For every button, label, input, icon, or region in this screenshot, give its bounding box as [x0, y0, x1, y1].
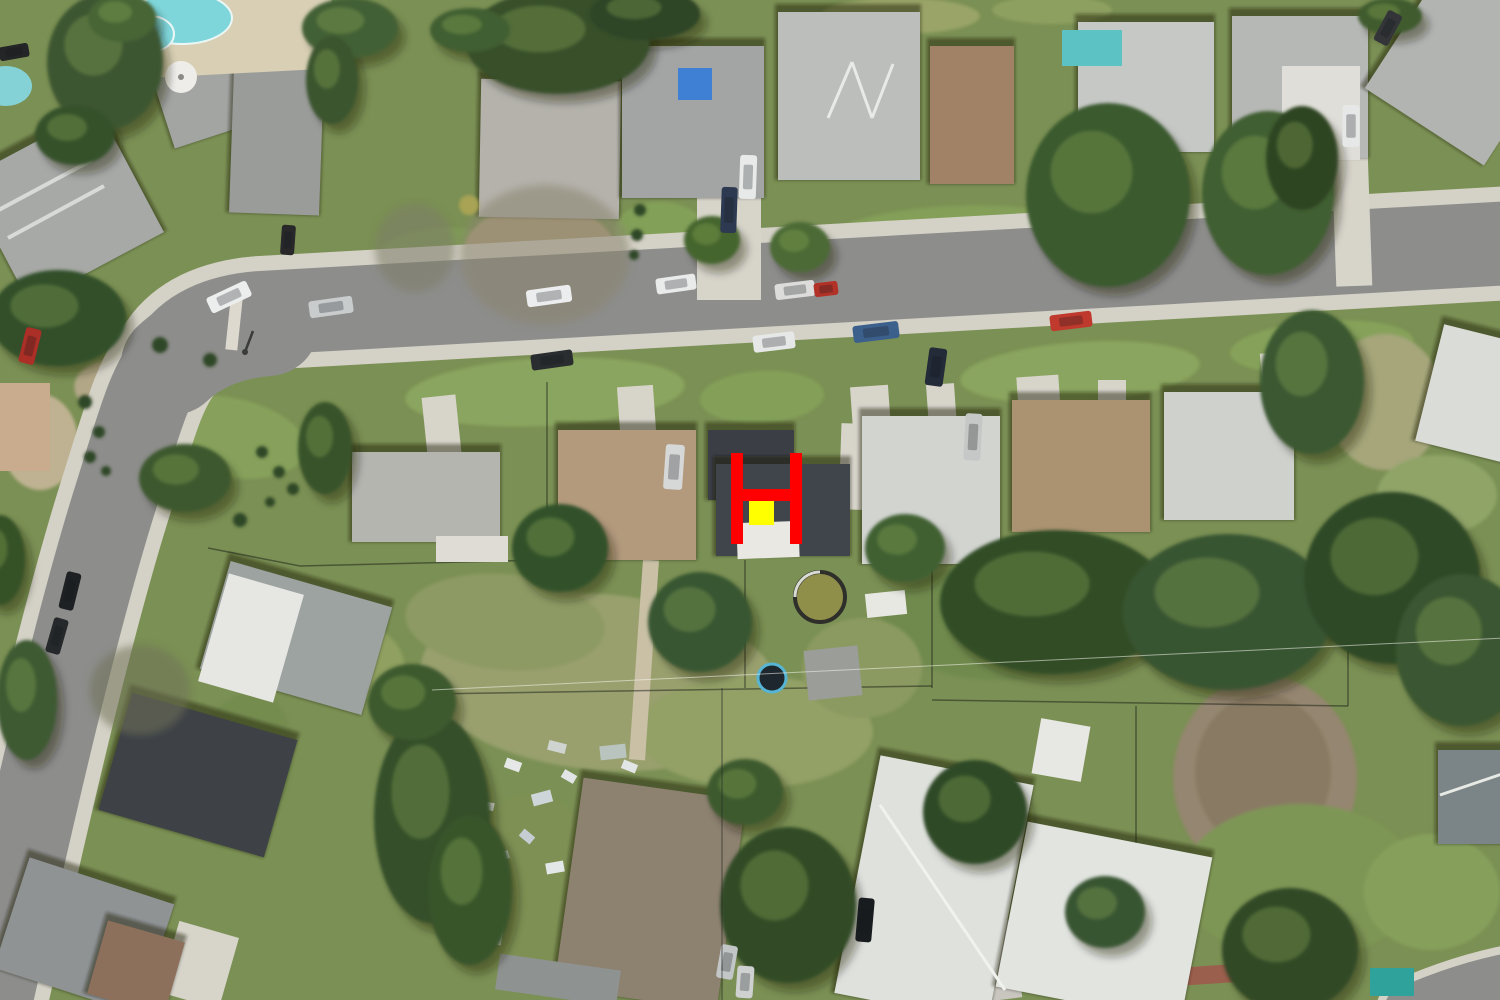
- shrub: [287, 483, 299, 495]
- grass-patch: [1364, 834, 1500, 950]
- shrub: [78, 395, 92, 409]
- tree-highlight: [939, 776, 991, 823]
- tree-highlight: [1051, 131, 1133, 214]
- outbuilding: [1032, 718, 1091, 782]
- house-s-gray: [352, 452, 500, 542]
- tree-highlight: [692, 223, 720, 245]
- shrub: [152, 337, 168, 353]
- roof-overlay: [678, 68, 712, 100]
- tree-highlight: [391, 745, 449, 840]
- shrub: [101, 466, 111, 476]
- car-glass: [743, 165, 753, 190]
- aerial-photo-viewport: [0, 0, 1500, 1000]
- car-glass: [284, 231, 293, 248]
- car: [813, 281, 839, 298]
- tree-highlight: [779, 230, 809, 253]
- bare-tree-canopy: [90, 645, 190, 735]
- tree-highlight: [153, 454, 199, 485]
- shrub: [84, 451, 96, 463]
- tree-highlight: [306, 416, 333, 457]
- outbuilding: [865, 590, 907, 618]
- tree-highlight: [1155, 557, 1260, 627]
- car-glass: [724, 197, 734, 223]
- outbuilding: [1370, 968, 1414, 996]
- car: [663, 444, 685, 490]
- car-glass: [968, 424, 979, 451]
- car-glass: [1346, 114, 1356, 138]
- car: [720, 187, 738, 234]
- tree-highlight: [877, 524, 917, 555]
- tree-highlight: [47, 114, 87, 141]
- outbuilding: [0, 383, 50, 471]
- tree-highlight: [10, 284, 78, 327]
- car-glass: [740, 973, 751, 992]
- umbrella-center: [178, 74, 184, 80]
- car: [739, 155, 758, 200]
- street-lamp-base: [242, 349, 248, 355]
- tree-highlight: [740, 850, 808, 920]
- outbuilding: [1062, 30, 1122, 66]
- marker-yellow-square: [749, 501, 774, 525]
- tree-highlight: [314, 49, 340, 89]
- outbuilding: [804, 645, 863, 700]
- tree-highlight: [526, 517, 574, 557]
- shrub: [233, 513, 247, 527]
- tree-highlight: [6, 658, 36, 712]
- car: [1343, 105, 1360, 147]
- shrub: [273, 466, 285, 478]
- tree-highlight: [1077, 887, 1117, 919]
- shrub: [203, 353, 217, 367]
- car: [280, 225, 296, 256]
- aerial-photo: [0, 0, 1500, 1000]
- shrub: [629, 250, 639, 260]
- tree-highlight: [718, 769, 756, 799]
- shrub: [93, 426, 105, 438]
- tree-highlight: [441, 838, 483, 906]
- debris-item: [599, 744, 626, 761]
- tree-highlight: [1416, 597, 1482, 665]
- tree-highlight: [381, 675, 425, 709]
- shrub: [631, 229, 643, 241]
- car-glass: [819, 284, 833, 293]
- tree-highlight: [442, 15, 482, 35]
- house-n-brown: [930, 46, 1014, 184]
- yellow-bush: [459, 195, 479, 215]
- trampoline: [758, 664, 786, 692]
- tree-highlight: [1277, 122, 1313, 169]
- outbuilding: [436, 536, 508, 562]
- car-glass: [668, 454, 680, 480]
- tree-highlight: [1276, 332, 1328, 397]
- tree-highlight: [1242, 907, 1310, 963]
- street-bottom-right: [1408, 976, 1500, 1000]
- car: [735, 965, 754, 998]
- street-corner-bulge: [172, 325, 268, 364]
- shrub: [256, 446, 268, 458]
- tree-highlight: [1330, 518, 1418, 595]
- house-n-zigzag: [778, 12, 920, 180]
- tree-highlight: [664, 587, 716, 632]
- shrub: [265, 497, 275, 507]
- bare-tree-canopy: [375, 204, 455, 292]
- tree-highlight: [316, 7, 364, 34]
- house-s-brown: [1012, 400, 1150, 532]
- shrub: [634, 204, 646, 216]
- house-e-gable: [1438, 750, 1500, 844]
- car: [963, 413, 982, 461]
- tree-highlight: [975, 552, 1090, 617]
- tree-highlight: [98, 1, 132, 23]
- marker-H-bar: [731, 489, 802, 501]
